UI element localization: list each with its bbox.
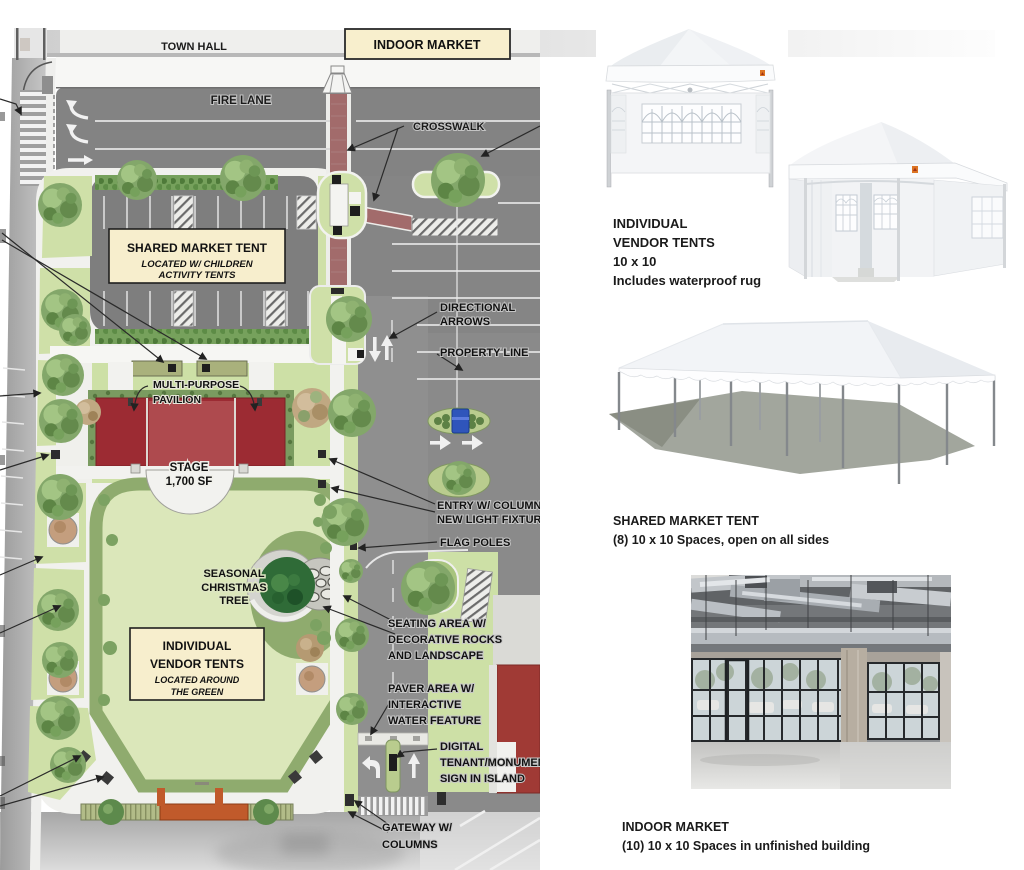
- svg-text:GATEWAY W/: GATEWAY W/: [382, 822, 452, 834]
- svg-text:FLAG POLES: FLAG POLES: [440, 537, 510, 549]
- svg-text:ACTIVITY TENTS: ACTIVITY TENTS: [158, 270, 237, 281]
- svg-text:PROPERTY LINE: PROPERTY LINE: [440, 347, 528, 359]
- svg-text:10 x 10: 10 x 10: [613, 254, 656, 269]
- svg-text:SEASONAL: SEASONAL: [203, 568, 264, 580]
- svg-text:VENDOR TENTS: VENDOR TENTS: [613, 235, 715, 250]
- svg-text:LOCATED W/ CHILDREN: LOCATED W/ CHILDREN: [141, 259, 253, 270]
- svg-text:SHARED MARKET TENT: SHARED MARKET TENT: [613, 514, 759, 528]
- svg-text:INDOOR MARKET: INDOOR MARKET: [374, 38, 481, 52]
- svg-text:ENTRY W/ COLUMNS: ENTRY W/ COLUMNS: [437, 500, 549, 512]
- svg-text:SHARED MARKET TENT: SHARED MARKET TENT: [127, 241, 268, 255]
- svg-text:INDIVIDUAL: INDIVIDUAL: [613, 216, 687, 231]
- svg-text:VENDOR TENTS: VENDOR TENTS: [150, 657, 244, 671]
- svg-text:(10) 10 x 10 Spaces in unfinis: (10) 10 x 10 Spaces in unfinished buildi…: [622, 839, 870, 853]
- svg-text:ARROWS: ARROWS: [440, 316, 490, 328]
- svg-text:TOWN HALL: TOWN HALL: [161, 41, 227, 53]
- svg-text:SEATING AREA W/: SEATING AREA W/: [388, 618, 486, 630]
- svg-text:COLUMNS: COLUMNS: [382, 839, 438, 851]
- svg-text:THE GREEN: THE GREEN: [171, 687, 224, 697]
- svg-text:FIRE LANE: FIRE LANE: [211, 95, 272, 107]
- svg-text:STAGE: STAGE: [170, 462, 209, 474]
- svg-text:SIGN IN ISLAND: SIGN IN ISLAND: [440, 773, 525, 785]
- svg-text:PAVILION: PAVILION: [153, 394, 201, 406]
- svg-text:NEW LIGHT FIXTURES: NEW LIGHT FIXTURES: [437, 514, 556, 526]
- svg-text:INDOOR MARKET: INDOOR MARKET: [622, 820, 729, 834]
- svg-text:MULTI-PURPOSE: MULTI-PURPOSE: [153, 379, 239, 391]
- svg-text:CROSSWALK: CROSSWALK: [413, 121, 485, 133]
- svg-text:DIRECTIONAL: DIRECTIONAL: [440, 302, 515, 314]
- svg-text:INDIVIDUAL: INDIVIDUAL: [163, 639, 232, 653]
- svg-text:TENANT/MONUMENT: TENANT/MONUMENT: [440, 757, 553, 769]
- svg-text:Includes waterproof rug: Includes waterproof rug: [613, 273, 761, 288]
- svg-text:AND LANDSCAPE: AND LANDSCAPE: [388, 650, 483, 662]
- svg-text:PAVER AREA W/: PAVER AREA W/: [388, 683, 474, 695]
- svg-text:DECORATIVE ROCKS: DECORATIVE ROCKS: [388, 634, 502, 646]
- svg-text:1,700 SF: 1,700 SF: [166, 476, 213, 488]
- svg-text:DIGITAL: DIGITAL: [440, 741, 483, 753]
- svg-text:TREE: TREE: [219, 595, 248, 607]
- svg-text:CHRISTMAS: CHRISTMAS: [201, 582, 266, 594]
- svg-text:(8) 10 x 10 Spaces, open on al: (8) 10 x 10 Spaces, open on all sides: [613, 533, 829, 547]
- svg-text:LOCATED AROUND: LOCATED AROUND: [155, 675, 240, 685]
- svg-text:WATER FEATURE: WATER FEATURE: [388, 715, 481, 727]
- svg-text:INTERACTIVE: INTERACTIVE: [388, 699, 461, 711]
